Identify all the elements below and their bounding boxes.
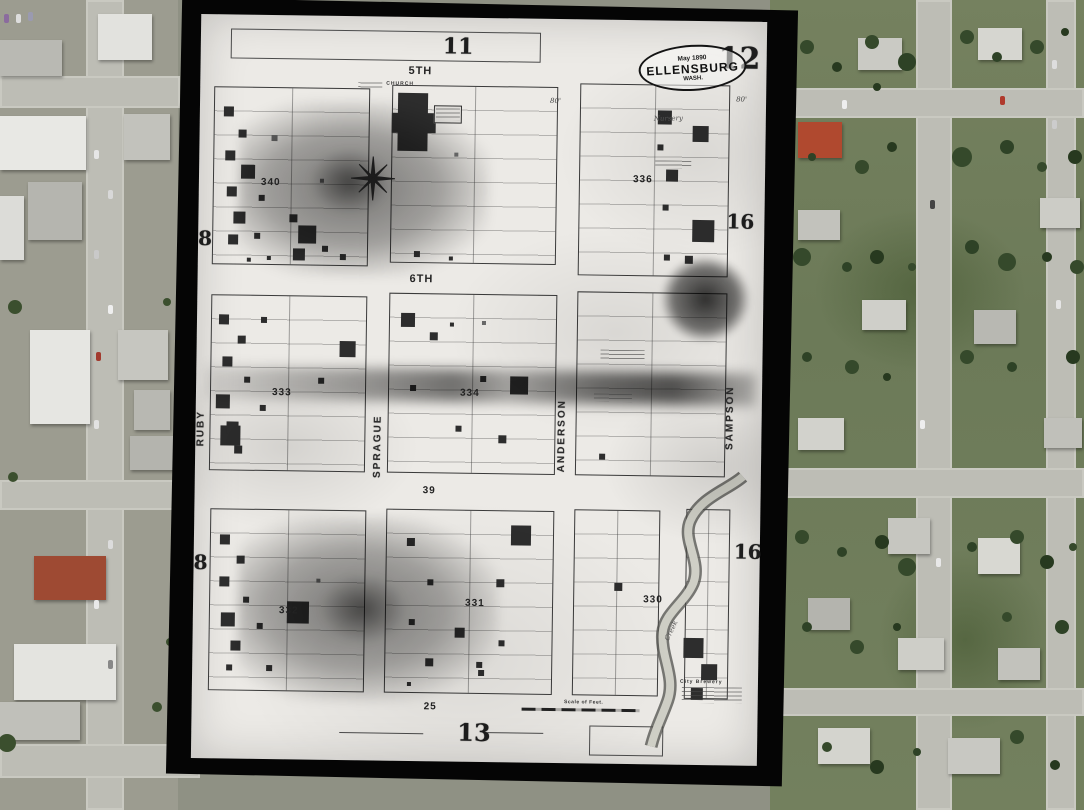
street-label-5th: 5TH <box>408 65 432 77</box>
block-number-330: 330 <box>643 594 663 605</box>
adjacent-sheet-top: 11 <box>443 33 474 59</box>
aerial-building <box>798 122 842 158</box>
aerial-building <box>0 40 62 76</box>
block-number-333: 333 <box>272 387 292 398</box>
aerial-building <box>1044 418 1082 448</box>
aerial-building <box>862 300 906 330</box>
stamp-state: WASH. <box>683 75 703 82</box>
aerial-building <box>978 538 1020 574</box>
handwritten-note <box>358 82 382 88</box>
scale-of-feet-label: Scale of Feet. <box>544 699 624 706</box>
map-viewport[interactable]: 11 12 May 1890 ELLENSBURG WASH. 5TH 6TH … <box>0 0 1084 810</box>
street-label-sprague: SPRAGUE <box>372 414 384 478</box>
sanborn-map-sheet: 11 12 May 1890 ELLENSBURG WASH. 5TH 6TH … <box>191 14 767 766</box>
aerial-building <box>888 518 930 554</box>
aerial-building <box>1040 198 1080 228</box>
adjacent-sheet-right-upper: 16 <box>726 209 754 233</box>
aerial-building <box>818 728 870 764</box>
aerial-building <box>134 390 170 430</box>
aerial-building <box>974 310 1016 344</box>
aerial-building <box>948 738 1000 774</box>
parked-cars <box>0 0 5 9</box>
road <box>0 76 180 108</box>
adjacent-sheet-left-lower: 8 <box>193 550 207 574</box>
nursery-note: Nursery <box>654 114 683 123</box>
lot-dimension: 80' <box>550 97 561 105</box>
street-label-ruby: RUBY <box>195 410 207 446</box>
handwritten-note <box>594 394 632 403</box>
road <box>770 688 1084 716</box>
church-label: CHURCH <box>386 81 414 87</box>
road <box>770 88 1084 118</box>
scan-backing: 11 12 May 1890 ELLENSBURG WASH. 5TH 6TH … <box>166 0 798 786</box>
aerial-building <box>898 638 944 670</box>
aerial-building <box>0 702 80 740</box>
brewery-label: City Brewery <box>680 679 750 686</box>
road <box>0 480 180 510</box>
street-label-anderson: ANDERSON <box>556 399 568 472</box>
aerial-building <box>0 196 24 260</box>
block-number-331: 331 <box>465 598 485 609</box>
aerial-building <box>14 644 116 700</box>
handwritten-note <box>655 160 691 169</box>
adjacent-sheet-left-upper: 8 <box>198 226 212 250</box>
road <box>770 468 1084 498</box>
aerial-building <box>98 14 152 60</box>
adjacent-sheet-right-lower: 16 <box>734 540 762 564</box>
block-number-339: 39 <box>423 485 436 496</box>
aerial-building <box>130 436 176 470</box>
aerial-building <box>978 28 1022 60</box>
block-number-332: 332 <box>279 605 299 616</box>
aerial-building <box>0 116 86 170</box>
street-label-6th: 6TH <box>410 273 434 285</box>
aerial-building <box>798 210 840 240</box>
aerial-building <box>998 648 1040 680</box>
block-number-340: 340 <box>261 177 281 188</box>
lot-dimension-25: 25 <box>424 701 437 712</box>
aerial-building <box>858 38 902 70</box>
lot-dimension: 80' <box>736 95 747 103</box>
adjacent-sheet-bottom: 13 <box>457 718 491 747</box>
compass-rose-icon <box>351 156 396 201</box>
block-number-336: 336 <box>633 174 653 185</box>
aerial-building <box>808 598 850 630</box>
aerial-building <box>34 556 106 600</box>
block-number-334: 334 <box>460 388 480 399</box>
aerial-building <box>124 114 170 160</box>
aerial-building <box>30 330 90 424</box>
aerial-building <box>798 418 844 450</box>
street-label-sampson: SAMPSON <box>724 385 736 450</box>
aerial-building <box>118 330 168 380</box>
handwritten-note <box>600 350 644 361</box>
brewery-description-text <box>682 687 742 704</box>
aerial-building <box>28 182 82 240</box>
